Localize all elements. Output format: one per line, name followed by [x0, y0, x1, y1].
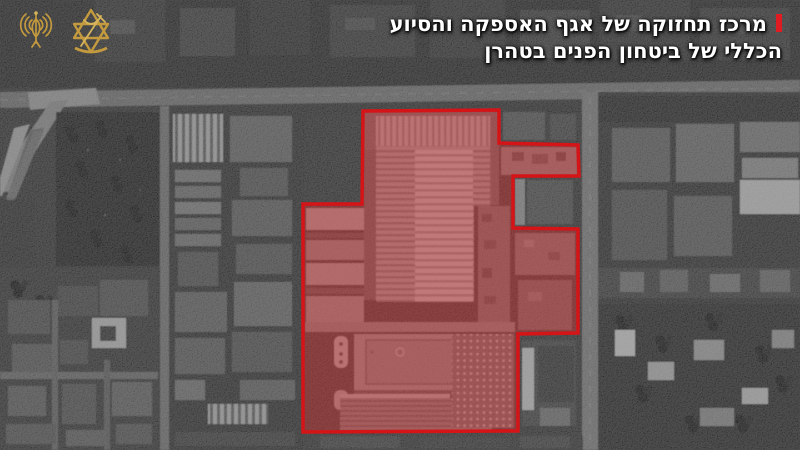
- caption-line-2: הכללי של ביטחון הפנים בטהרן: [390, 38, 782, 65]
- idf-spokesperson-emblem-icon: [14, 7, 58, 59]
- caption-line-1: מרכז תחזוקה של אגף האספקה והסיוע: [390, 11, 782, 38]
- satellite-map: [0, 0, 800, 450]
- caption-text-1: מרכז תחזוקה של אגף האספקה והסיוע: [390, 12, 767, 36]
- idf-satellite-graphic: מרכז תחזוקה של אגף האספקה והסיוע הכללי ש…: [0, 0, 800, 450]
- caption: מרכז תחזוקה של אגף האספקה והסיוע הכללי ש…: [390, 11, 782, 65]
- header-logos: [14, 7, 114, 59]
- caption-marker: [776, 14, 782, 32]
- idf-emblem-icon: [68, 7, 114, 59]
